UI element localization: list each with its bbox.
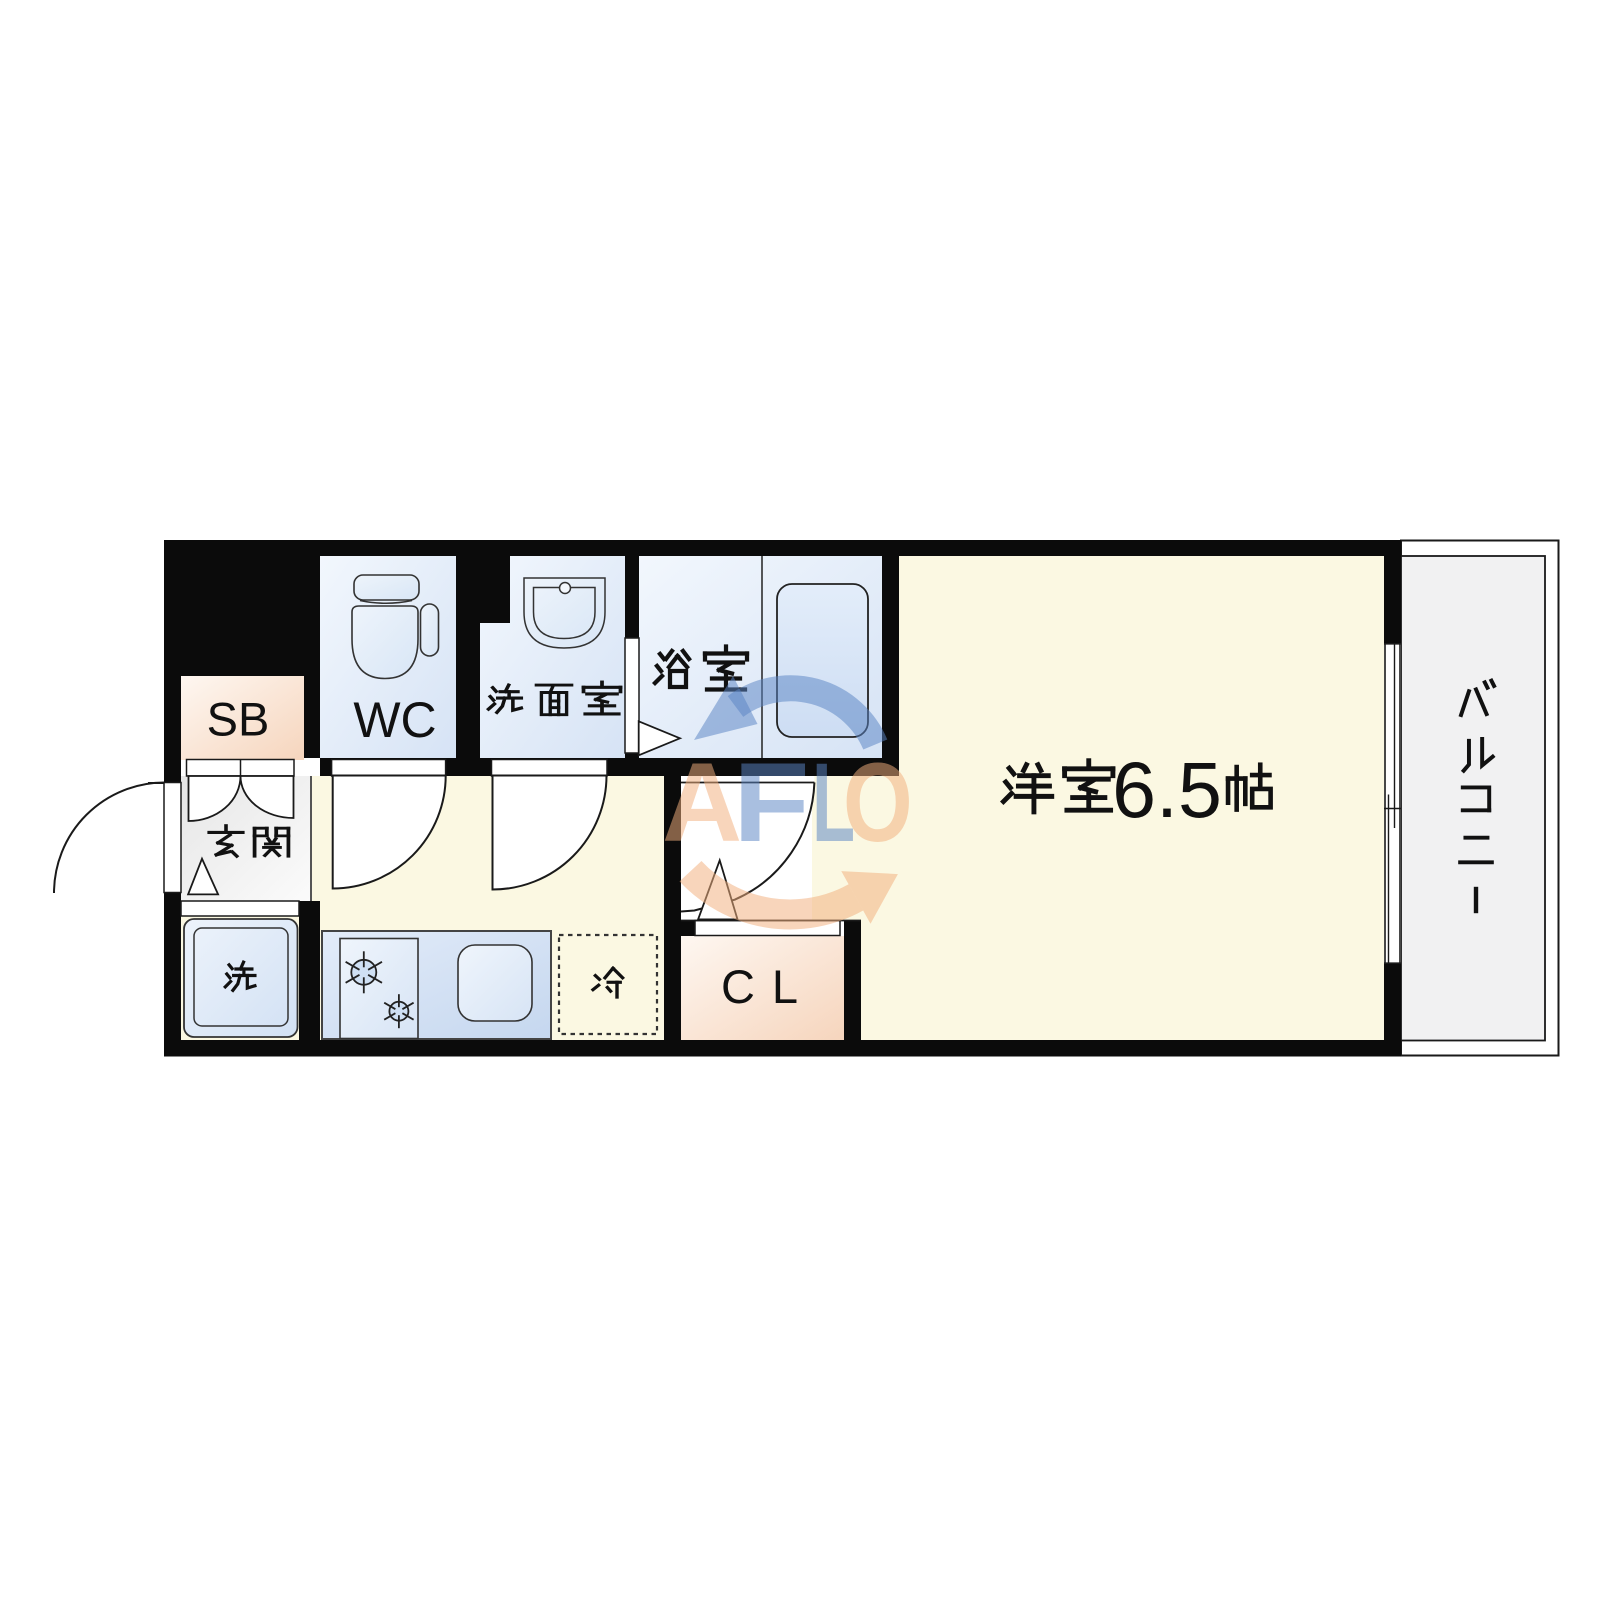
- svg-text:A: A: [662, 739, 742, 865]
- svg-text:CL: CL: [721, 960, 815, 1013]
- svg-text:O: O: [843, 741, 913, 866]
- svg-text:SB: SB: [207, 693, 270, 746]
- svg-text:6.5: 6.5: [1112, 745, 1222, 834]
- svg-text:WC: WC: [353, 692, 436, 748]
- svg-text:F: F: [733, 740, 810, 865]
